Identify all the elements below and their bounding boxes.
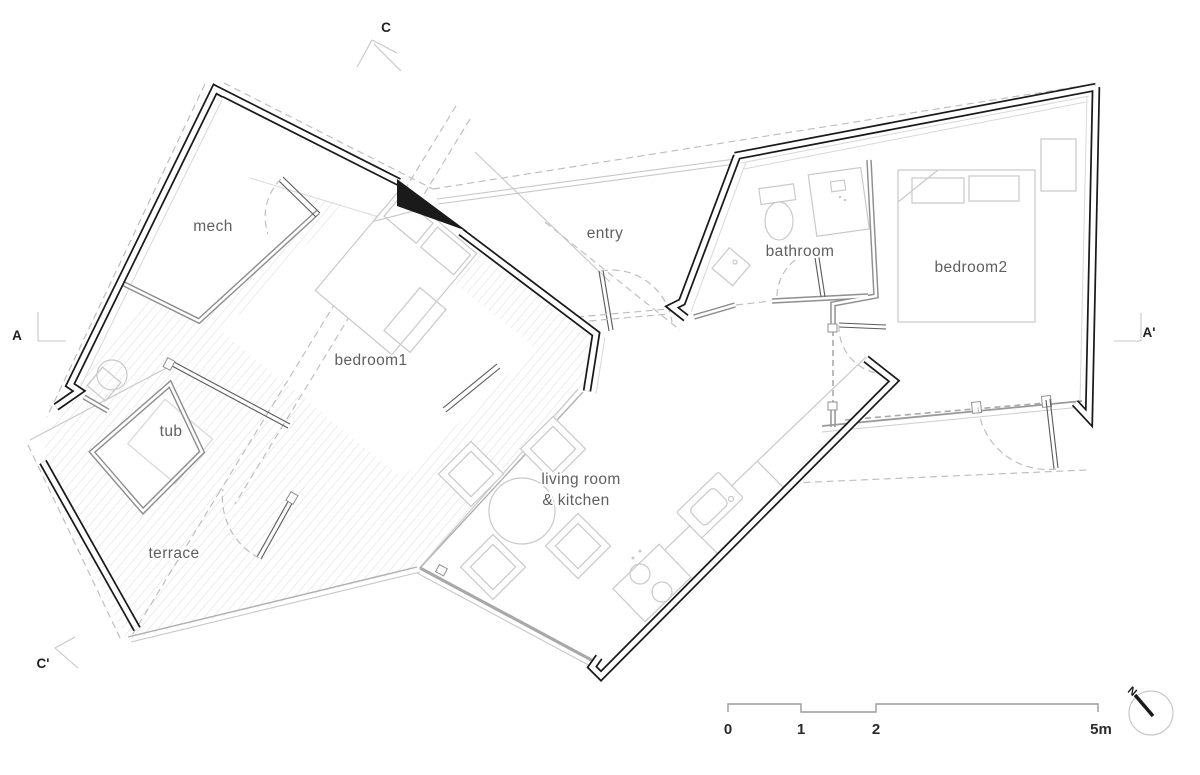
north-arrow-icon: N	[1125, 685, 1173, 735]
room-label-living-line1: living room	[541, 471, 620, 488]
scale-bar: 0 1 2 5m	[724, 704, 1112, 738]
scale-tick-5m: 5m	[1090, 721, 1112, 738]
scale-tick-1: 1	[797, 721, 805, 738]
floor-plan-drawing: mech bedroom1 tub terrace entry bathroom…	[0, 0, 1200, 775]
shower-icon	[808, 168, 869, 237]
section-label-c-prime: C'	[37, 656, 50, 671]
bed2-icon	[898, 170, 1035, 322]
section-marker-a: A	[12, 312, 66, 343]
section-label-a: A	[12, 328, 22, 343]
room-label-bedroom1: bedroom1	[335, 352, 408, 369]
room-label-tub: tub	[160, 423, 183, 440]
room-label-bathroom: bathroom	[766, 243, 835, 260]
section-label-c: C	[381, 20, 391, 35]
room-label-terrace: terrace	[148, 545, 199, 562]
room-label-bedroom2: bedroom2	[935, 259, 1008, 276]
toilet-icon	[759, 184, 796, 240]
section-marker-c: C	[357, 20, 397, 67]
room-label-mech: mech	[193, 218, 233, 235]
section-marker-c-prime: C'	[37, 637, 78, 671]
room-label-living-line2: & kitchen	[542, 492, 609, 509]
bedroom2-closet-icon	[1041, 139, 1076, 191]
bathroom-sink-icon	[712, 248, 750, 286]
floor-plan-page: mech bedroom1 tub terrace entry bathroom…	[0, 0, 1200, 775]
stove-icon	[613, 544, 691, 622]
scale-tick-0: 0	[724, 721, 732, 738]
section-label-a-prime: A'	[1143, 325, 1156, 340]
room-label-entry: entry	[587, 225, 623, 242]
scale-tick-2: 2	[872, 721, 880, 738]
section-marker-a-prime: A'	[1114, 313, 1155, 341]
